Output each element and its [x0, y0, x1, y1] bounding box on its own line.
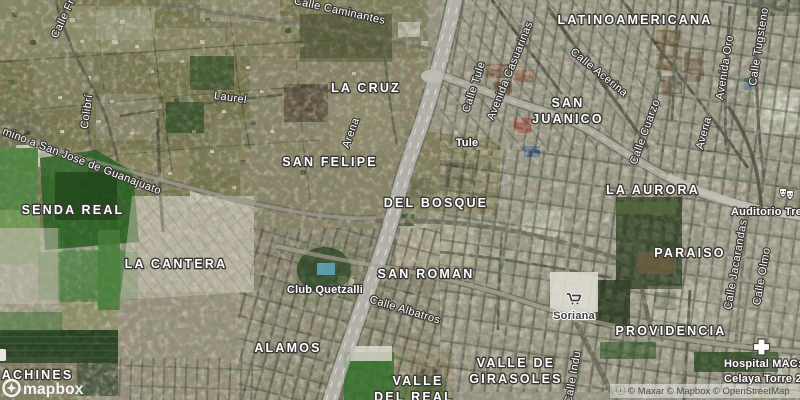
svg-text:Auditorio Tre: Auditorio Tre — [731, 206, 800, 218]
svg-text:LATINOAMERICANA: LATINOAMERICANA — [558, 13, 713, 27]
svg-text:SAN: SAN — [552, 96, 585, 110]
svg-text:DEL BOSQUE: DEL BOSQUE — [384, 196, 488, 210]
svg-text:ⓘ © Maxar © Mapbox © OpenStree: ⓘ © Maxar © Mapbox © OpenStreetMap — [616, 386, 790, 397]
svg-text:PROVIDENCIA: PROVIDENCIA — [615, 324, 726, 338]
svg-text:mapbox: mapbox — [23, 381, 84, 398]
svg-text:VALLE: VALLE — [392, 374, 443, 388]
svg-text:LA CRUZ: LA CRUZ — [331, 81, 401, 95]
svg-text:LA CANTERA: LA CANTERA — [125, 257, 228, 271]
svg-text:Hospital MAC:: Hospital MAC: — [724, 358, 800, 370]
svg-text:DEL REAL: DEL REAL — [374, 390, 454, 400]
svg-text:Club Quetzalli: Club Quetzalli — [287, 284, 363, 296]
svg-text:Celaya Torre 2: Celaya Torre 2 — [724, 373, 800, 385]
svg-text:VALLE DE: VALLE DE — [477, 356, 555, 370]
svg-text:JUANICO: JUANICO — [532, 112, 604, 126]
svg-text:SAN ROMAN: SAN ROMAN — [378, 267, 475, 281]
svg-text:SENDA REAL: SENDA REAL — [22, 203, 125, 217]
svg-text:Soriana: Soriana — [553, 310, 595, 322]
svg-text:PARAISO: PARAISO — [654, 246, 725, 260]
svg-text:Tule: Tule — [456, 137, 479, 149]
svg-text:ALAMOS: ALAMOS — [254, 341, 321, 355]
svg-text:SAN FELIPE: SAN FELIPE — [282, 155, 378, 169]
svg-text:LA AURORA: LA AURORA — [606, 183, 700, 197]
svg-text:GIRASOLES: GIRASOLES — [469, 372, 562, 386]
